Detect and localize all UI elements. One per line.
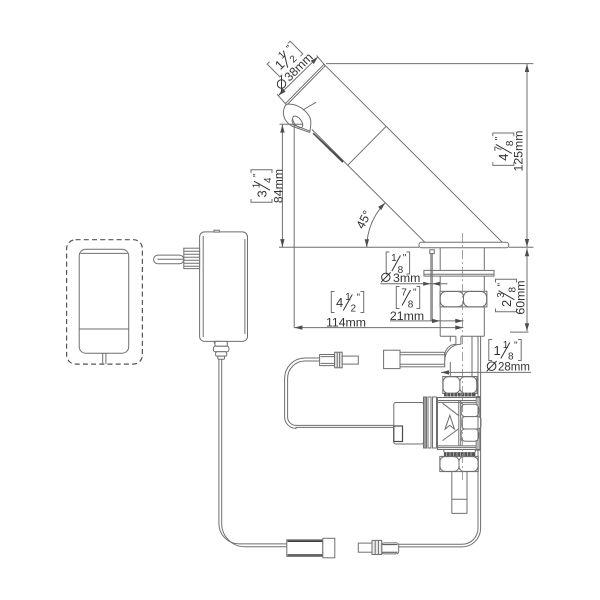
svg-text:2: 2: [499, 300, 514, 307]
svg-text:4: 4: [336, 295, 343, 310]
svg-text:": ": [497, 283, 508, 287]
svg-text:": ": [252, 173, 263, 177]
svg-text:": ": [514, 341, 518, 352]
svg-text:4: 4: [496, 153, 511, 160]
svg-text:60mm: 60mm: [514, 280, 528, 314]
svg-text:3: 3: [254, 190, 269, 197]
svg-text:": ": [494, 136, 505, 140]
svg-text:3mm: 3mm: [393, 271, 420, 285]
svg-text:1: 1: [494, 343, 501, 358]
svg-text:": ": [413, 288, 417, 299]
svg-text:2: 2: [351, 304, 357, 315]
svg-text:125mm: 125mm: [512, 130, 526, 171]
svg-text:28mm: 28mm: [498, 361, 530, 373]
svg-text:": ": [403, 253, 407, 264]
svg-text:": ": [357, 293, 361, 304]
svg-text:84mm: 84mm: [272, 169, 286, 203]
